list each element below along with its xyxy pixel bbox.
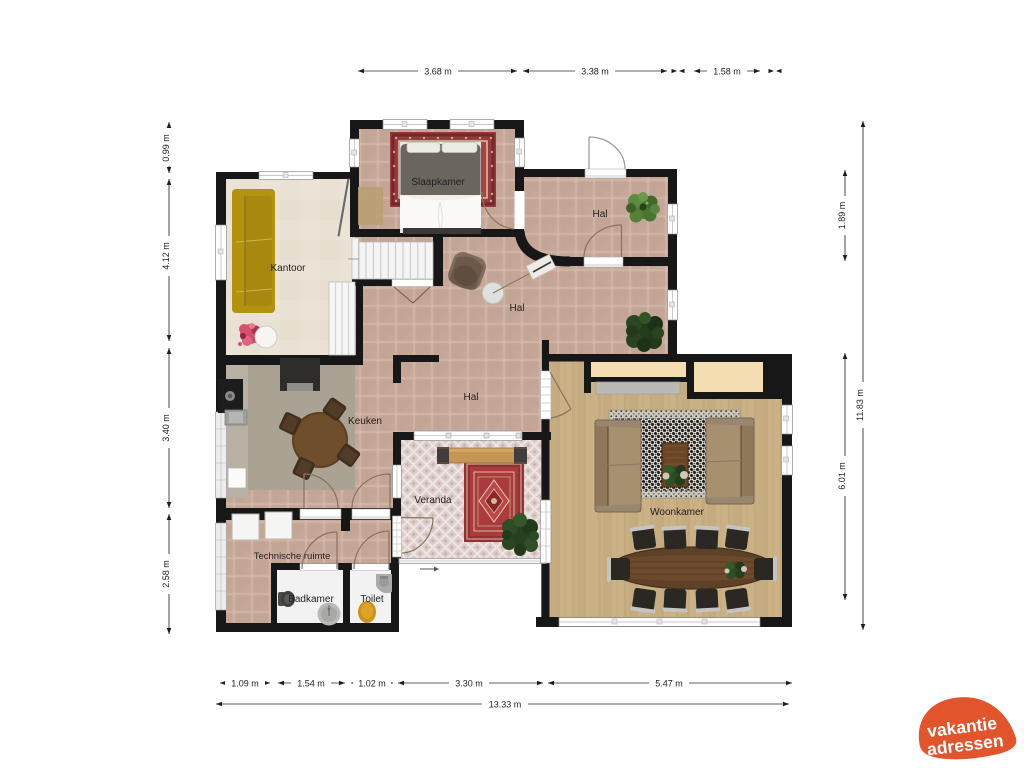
svg-text:5.47 m: 5.47 m [655, 679, 683, 689]
svg-text:Hal: Hal [592, 209, 607, 220]
svg-text:1.58 m: 1.58 m [713, 67, 741, 77]
svg-text:Toilet: Toilet [360, 594, 384, 605]
svg-text:Hal: Hal [509, 303, 524, 314]
svg-text:11.83 m: 11.83 m [855, 389, 865, 421]
svg-text:Badkamer: Badkamer [288, 594, 334, 605]
svg-text:4.12 m: 4.12 m [161, 242, 171, 270]
svg-text:1.09 m: 1.09 m [231, 679, 259, 689]
svg-text:0.99 m: 0.99 m [161, 134, 171, 162]
svg-text:Slaapkamer: Slaapkamer [411, 177, 465, 188]
svg-text:Technische ruimte: Technische ruimte [254, 551, 331, 562]
svg-text:3.40 m: 3.40 m [161, 414, 171, 442]
svg-text:6.01 m: 6.01 m [837, 462, 847, 490]
svg-text:3.38 m: 3.38 m [581, 67, 609, 77]
svg-text:1.54 m: 1.54 m [297, 679, 325, 689]
svg-text:Hal: Hal [463, 392, 478, 403]
svg-text:Kantoor: Kantoor [270, 263, 306, 274]
svg-text:2.58 m: 2.58 m [161, 560, 171, 588]
svg-text:3.68 m: 3.68 m [424, 67, 452, 77]
svg-text:3.30 m: 3.30 m [455, 679, 483, 689]
svg-text:1.89 m: 1.89 m [837, 202, 847, 230]
svg-text:1.02 m: 1.02 m [358, 679, 386, 689]
svg-text:Woonkamer: Woonkamer [650, 507, 704, 518]
svg-text:13.33 m: 13.33 m [489, 700, 522, 710]
svg-text:Veranda: Veranda [414, 495, 452, 506]
svg-text:Keuken: Keuken [348, 416, 382, 427]
